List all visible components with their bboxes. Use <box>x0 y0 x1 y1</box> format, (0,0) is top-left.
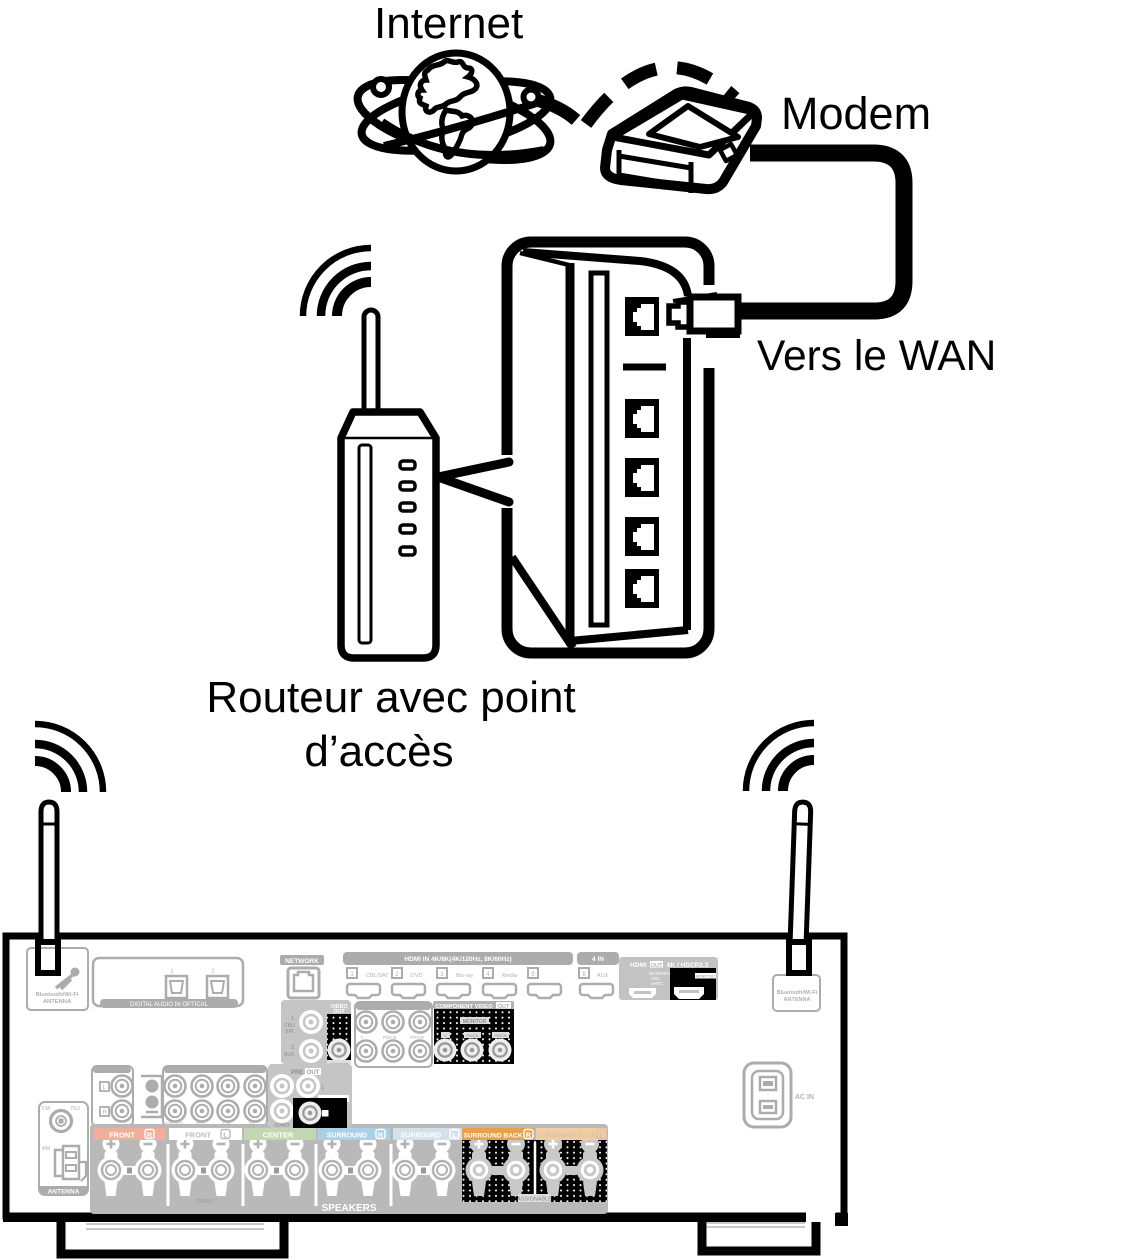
svg-text:ANTENNA: ANTENNA <box>48 1189 80 1196</box>
svg-text:AUX: AUX <box>284 1052 295 1058</box>
svg-text:PR/CR: PR/CR <box>494 1033 507 1038</box>
svg-text:R: R <box>103 1110 108 1116</box>
svg-text:Modem: Modem <box>781 88 931 139</box>
svg-text:L: L <box>599 1131 604 1140</box>
svg-text:SURROUND BACK: SURROUND BACK <box>464 1133 523 1140</box>
svg-text:SURROUND: SURROUND <box>327 1133 367 1140</box>
svg-text:DIGITAL AUDIO IN OPTICAL: DIGITAL AUDIO IN OPTICAL <box>130 1002 209 1008</box>
svg-text:CBL/SAT: CBL/SAT <box>366 973 389 979</box>
svg-text:CENTER: CENTER <box>263 1131 294 1140</box>
svg-text:MONITOR2: MONITOR2 <box>696 975 716 979</box>
svg-text:4 IN: 4 IN <box>592 956 604 963</box>
svg-text:Y: Y <box>360 1035 363 1040</box>
svg-text:SURROUND: SURROUND <box>401 1133 441 1140</box>
svg-text:Internet: Internet <box>374 0 523 48</box>
svg-text:Y: Y <box>444 1033 447 1038</box>
svg-text:R: R <box>378 1131 384 1140</box>
svg-text:AC IN: AC IN <box>795 1094 814 1101</box>
svg-text:L: L <box>223 1131 228 1140</box>
svg-text:FRONT: FRONT <box>185 1131 211 1140</box>
svg-text:ASSIGNABLE: ASSIGNABLE <box>517 1197 552 1203</box>
svg-text:ANTENNA: ANTENNA <box>43 999 72 1005</box>
svg-text:Blu-ray: Blu-ray <box>456 973 474 979</box>
svg-text:eARC: eARC <box>651 981 662 986</box>
svg-text:PB/CB: PB/CB <box>466 1033 478 1038</box>
svg-text:FM: FM <box>42 1106 50 1112</box>
svg-text:2: 2 <box>291 1045 294 1051</box>
svg-text:SPEAKERS: SPEAKERS <box>321 1203 376 1214</box>
svg-text:HDMI: HDMI <box>630 962 647 969</box>
svg-text:FRONT: FRONT <box>196 1199 213 1205</box>
svg-text:R: R <box>147 1131 153 1140</box>
svg-text:Bluetooth/Wi-Fi: Bluetooth/Wi-Fi <box>777 990 818 996</box>
svg-text:Routeur avec point: Routeur avec point <box>206 673 575 722</box>
svg-text:PB/CB: PB/CB <box>383 1035 397 1040</box>
svg-text:8K / HDCP2.3: 8K / HDCP2.3 <box>667 962 709 969</box>
svg-text:R: R <box>526 1131 532 1140</box>
svg-text:NETWORK: NETWORK <box>285 958 319 965</box>
svg-text:SURROUND BACK: SURROUND BACK <box>538 1133 597 1140</box>
svg-text:OUT: OUT <box>651 963 663 969</box>
svg-text:1: 1 <box>291 1016 294 1022</box>
svg-text:Vers le WAN: Vers le WAN <box>757 333 996 380</box>
svg-text:ZONE2: ZONE2 <box>274 1123 290 1128</box>
svg-text:MONITOR: MONITOR <box>463 1019 487 1025</box>
svg-text:DVD: DVD <box>411 973 423 979</box>
svg-text:L: L <box>452 1131 457 1140</box>
svg-text:AUX: AUX <box>597 973 609 979</box>
svg-text:75Ω: 75Ω <box>70 1106 80 1112</box>
svg-text:AM: AM <box>42 1146 51 1152</box>
svg-text:Media: Media <box>502 973 518 979</box>
svg-text:FRONT: FRONT <box>109 1131 135 1140</box>
svg-text:d’accès: d’accès <box>304 727 453 776</box>
svg-text:HDMI IN 4K/8K(4K/120Hz, 8K/60H: HDMI IN 4K/8K(4K/120Hz, 8K/60Hz) <box>404 956 511 963</box>
svg-text:PRE: PRE <box>291 1070 303 1076</box>
svg-text:SAT: SAT <box>285 1029 294 1035</box>
svg-text:ANTENNA: ANTENNA <box>784 997 811 1003</box>
svg-text:Bluetooth/Wi-Fi: Bluetooth/Wi-Fi <box>36 992 79 998</box>
svg-text:PR/CR: PR/CR <box>410 1035 425 1040</box>
